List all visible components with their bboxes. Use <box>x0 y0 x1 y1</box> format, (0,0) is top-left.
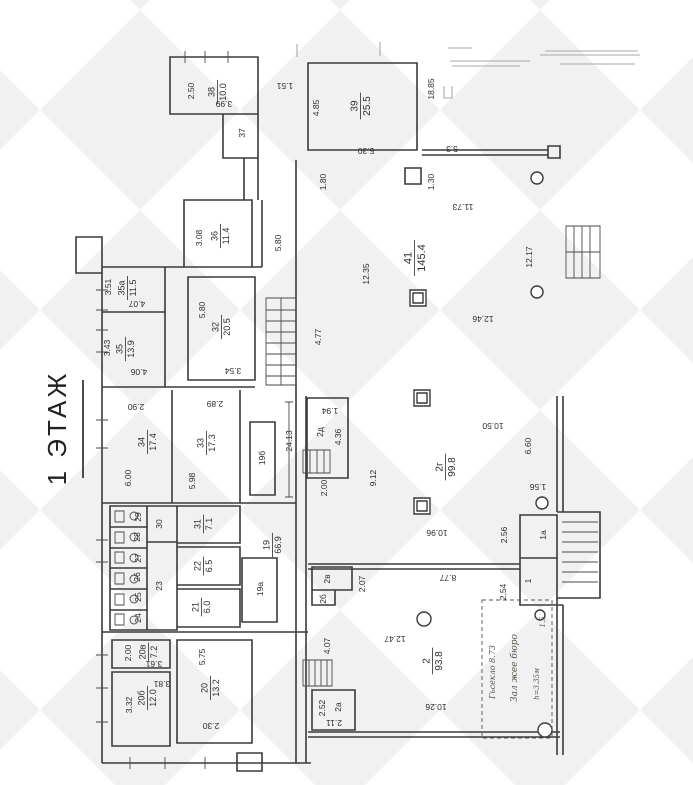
mark-4.07: 4.07 <box>128 299 145 309</box>
mark-4.85: 4.85 <box>311 99 321 116</box>
svg-text:4.85: 4.85 <box>311 99 321 116</box>
mark-1: 1 <box>523 578 533 583</box>
svg-text:5.80: 5.80 <box>273 234 283 251</box>
svg-text:37: 37 <box>237 128 247 138</box>
mark-3.99: 3.99 <box>215 99 232 109</box>
svg-text:20в: 20в <box>138 644 148 659</box>
svg-text:7.2: 7.2 <box>149 646 159 659</box>
svg-text:3.32: 3.32 <box>124 696 134 713</box>
svg-text:66.9: 66.9 <box>273 536 283 554</box>
mark-12.17: 12.17 <box>524 246 534 268</box>
svg-text:12.35: 12.35 <box>361 263 371 285</box>
mark-1а: 1а <box>538 530 548 540</box>
mark-5.98: 5.98 <box>187 472 197 489</box>
mark-12.47: 12.47 <box>384 634 406 644</box>
mark-2.00: 2.00 <box>319 479 329 496</box>
svg-text:19б: 19б <box>257 451 267 465</box>
svg-text:Гьсекло 8.73: Гьсекло 8.73 <box>488 645 497 700</box>
svg-text:27: 27 <box>133 553 143 563</box>
mark-1.94: 1.94 <box>321 406 338 416</box>
svg-text:2д: 2д <box>315 427 325 437</box>
mark-1.56: 1.56 <box>529 482 546 492</box>
svg-text:4.77: 4.77 <box>313 328 323 345</box>
mark-3.08: 3.08 <box>194 229 204 246</box>
svg-text:17.4: 17.4 <box>148 433 158 451</box>
mark-24: 24 <box>133 613 143 623</box>
mark-18.85: 18.85 <box>426 78 436 100</box>
mark-5.30: 5.30 <box>357 146 374 156</box>
mark-2в: 2в <box>322 574 332 584</box>
mark-4.07: 4.07 <box>322 637 332 654</box>
column-square <box>414 390 430 406</box>
svg-text:9.12: 9.12 <box>368 469 378 486</box>
svg-text:7.1: 7.1 <box>204 518 214 531</box>
mark-2.50: 2.50 <box>186 82 196 99</box>
svg-text:3.43: 3.43 <box>102 339 112 356</box>
svg-text:10.0: 10.0 <box>218 83 228 101</box>
svg-text:11.73: 11.73 <box>452 202 473 212</box>
svg-text:21: 21 <box>191 602 201 612</box>
svg-text:h=3.35м: h=3.35м <box>533 668 541 700</box>
mark-1.30: 1.30 <box>426 173 436 190</box>
watermark-layer <box>0 0 693 785</box>
column-square <box>414 498 430 514</box>
svg-text:17.3: 17.3 <box>207 434 217 452</box>
svg-text:28: 28 <box>132 532 142 542</box>
mark-2.00: 2.00 <box>123 644 133 661</box>
svg-text:22: 22 <box>193 561 203 571</box>
mark-5.80: 5.80 <box>273 234 283 251</box>
svg-text:12.46: 12.46 <box>472 314 494 324</box>
svg-text:1.30: 1.30 <box>426 173 436 190</box>
mark-28: 28 <box>132 532 142 542</box>
svg-text:1.5: 1.5 <box>539 616 547 628</box>
handwritten-note-3: h=3.35м <box>533 668 541 700</box>
svg-text:32: 32 <box>211 322 221 332</box>
svg-text:33: 33 <box>196 438 206 448</box>
svg-text:2а: 2а <box>333 702 343 712</box>
svg-text:2г: 2г <box>435 462 446 472</box>
svg-text:36: 36 <box>210 231 220 241</box>
svg-text:93.8: 93.8 <box>434 651 445 671</box>
svg-text:19: 19 <box>262 540 272 550</box>
mark-10.96: 10.96 <box>426 528 448 538</box>
handwritten-note-2: Зал жее бюро <box>509 633 520 701</box>
mark-37: 37 <box>237 128 247 138</box>
mark-2.11: 2.11 <box>326 718 342 728</box>
svg-text:2.54: 2.54 <box>498 583 508 600</box>
svg-text:1а: 1а <box>538 530 548 540</box>
svg-text:6.00: 6.00 <box>123 469 133 486</box>
svg-text:1.80: 1.80 <box>318 173 328 190</box>
mark-1.51: 1.51 <box>276 81 293 91</box>
svg-text:3.61: 3.61 <box>145 659 162 669</box>
svg-text:3.99: 3.99 <box>215 99 232 109</box>
svg-text:20: 20 <box>200 683 210 693</box>
svg-text:4.07: 4.07 <box>322 637 332 654</box>
mark-10.50: 10.50 <box>482 421 504 431</box>
svg-text:10.96: 10.96 <box>426 528 448 538</box>
floor-plan-scan: 1 ЭТАЖ 3810.03925.53611.435а11.53513.932… <box>0 0 693 785</box>
svg-text:4.06: 4.06 <box>130 367 147 377</box>
svg-text:19а: 19а <box>255 582 265 596</box>
svg-text:25: 25 <box>133 592 143 602</box>
mark-5.75: 5.75 <box>197 648 207 665</box>
svg-text:6.60: 6.60 <box>523 437 533 454</box>
mark-12.35: 12.35 <box>361 263 371 285</box>
mark-9.12: 9.12 <box>368 469 378 486</box>
floor-title: 1 ЭТАЖ <box>42 371 72 486</box>
svg-text:3.81: 3.81 <box>153 679 170 689</box>
mark-4.36: 4.36 <box>333 428 343 445</box>
mark-3.43: 3.43 <box>102 339 112 356</box>
svg-text:18.85: 18.85 <box>426 78 436 100</box>
mark-3.81: 3.81 <box>153 679 170 689</box>
svg-text:12.47: 12.47 <box>384 634 406 644</box>
svg-text:1.51: 1.51 <box>276 81 293 91</box>
svg-text:41: 41 <box>403 252 415 264</box>
column-square <box>410 290 426 306</box>
svg-text:35: 35 <box>115 344 125 354</box>
column-round <box>531 286 543 298</box>
svg-text:23: 23 <box>154 581 164 591</box>
handwritten-note-4: 1.5 <box>539 616 547 628</box>
svg-text:25.5: 25.5 <box>362 96 373 116</box>
column-round <box>538 723 552 737</box>
svg-text:2.90: 2.90 <box>127 402 144 412</box>
mark-25: 25 <box>133 592 143 602</box>
svg-text:2.56: 2.56 <box>499 526 509 543</box>
mark-30: 30 <box>154 519 164 529</box>
column-round <box>536 497 548 509</box>
svg-text:2б: 2б <box>318 594 328 604</box>
mark-19б: 19б <box>257 451 267 465</box>
svg-text:11.4: 11.4 <box>221 228 231 245</box>
mark-12.46: 12.46 <box>472 314 494 324</box>
mark-2.89: 2.89 <box>206 399 223 409</box>
svg-text:4.36: 4.36 <box>333 428 343 445</box>
mark-24.13: 24.13 <box>284 430 294 452</box>
svg-text:2.50: 2.50 <box>186 82 196 99</box>
mark-2.54: 2.54 <box>498 583 508 600</box>
mark-3.61: 3.61 <box>145 659 162 669</box>
svg-text:2.52: 2.52 <box>317 699 327 716</box>
svg-text:2.89: 2.89 <box>206 399 223 409</box>
svg-text:31: 31 <box>193 519 203 529</box>
mark-2д: 2д <box>315 427 325 437</box>
mark-11.73: 11.73 <box>452 202 473 212</box>
svg-text:2в: 2в <box>322 574 332 584</box>
svg-text:10.50: 10.50 <box>482 421 504 431</box>
svg-text:10.26: 10.26 <box>425 702 447 712</box>
svg-text:29: 29 <box>133 512 143 522</box>
svg-text:2: 2 <box>422 658 433 664</box>
svg-text:11.5: 11.5 <box>128 280 138 297</box>
svg-text:3.51: 3.51 <box>103 278 113 295</box>
mark-4.06: 4.06 <box>130 367 147 377</box>
svg-text:39: 39 <box>350 100 361 112</box>
mark-3.51: 3.51 <box>103 278 113 295</box>
svg-text:1.56: 1.56 <box>529 482 546 492</box>
svg-text:2.07: 2.07 <box>357 575 367 592</box>
mark-2б: 2б <box>318 594 328 604</box>
svg-text:1: 1 <box>523 578 533 583</box>
mark-19а: 19а <box>255 582 265 596</box>
svg-text:5.98: 5.98 <box>187 472 197 489</box>
mark-2а: 2а <box>333 702 343 712</box>
svg-text:5.75: 5.75 <box>197 648 207 665</box>
mark-2.52: 2.52 <box>317 699 327 716</box>
svg-text:99.8: 99.8 <box>447 457 458 477</box>
mark-29: 29 <box>133 512 143 522</box>
svg-text:Зал жее бюро: Зал жее бюро <box>509 633 520 701</box>
svg-text:145.4: 145.4 <box>416 244 428 272</box>
svg-text:2.00: 2.00 <box>319 479 329 496</box>
mark-2.30: 2.30 <box>202 721 219 731</box>
svg-text:2.30: 2.30 <box>202 721 219 731</box>
svg-text:38: 38 <box>207 87 217 97</box>
svg-text:35а: 35а <box>117 280 127 295</box>
column-round <box>417 612 431 626</box>
svg-text:34: 34 <box>137 437 147 447</box>
mark-6.00: 6.00 <box>123 469 133 486</box>
mark-27: 27 <box>133 553 143 563</box>
mark-3.54: 3.54 <box>224 366 241 376</box>
svg-text:12.17: 12.17 <box>524 246 534 268</box>
svg-text:5.30: 5.30 <box>357 146 374 156</box>
svg-text:26: 26 <box>132 572 142 582</box>
svg-text:4.07: 4.07 <box>128 299 145 309</box>
svg-text:12.0: 12.0 <box>148 689 158 707</box>
svg-text:24: 24 <box>133 613 143 623</box>
svg-text:20б: 20б <box>137 690 147 705</box>
mark-3.32: 3.32 <box>124 696 134 713</box>
svg-text:1.94: 1.94 <box>321 406 338 416</box>
mark-26: 26 <box>132 572 142 582</box>
mark-5.3: 5.3 <box>446 144 458 154</box>
column-round <box>531 172 543 184</box>
svg-text:13.2: 13.2 <box>211 679 221 697</box>
mark-2.07: 2.07 <box>357 575 367 592</box>
mark-5.80: 5.80 <box>197 301 207 318</box>
svg-text:30: 30 <box>154 519 164 529</box>
handwritten-note-1: Гьсекло 8.73 <box>488 645 497 700</box>
svg-text:13.9: 13.9 <box>126 340 136 358</box>
svg-text:5.80: 5.80 <box>197 301 207 318</box>
mark-2.56: 2.56 <box>499 526 509 543</box>
svg-text:24.13: 24.13 <box>284 430 294 452</box>
svg-text:6.5: 6.5 <box>204 560 214 573</box>
svg-text:3.54: 3.54 <box>224 366 241 376</box>
mark-6.60: 6.60 <box>523 437 533 454</box>
svg-text:20.5: 20.5 <box>222 318 232 336</box>
svg-text:3.08: 3.08 <box>194 229 204 246</box>
floor-plan-svg: 1 ЭТАЖ 3810.03925.53611.435а11.53513.932… <box>0 0 693 785</box>
mark-2.90: 2.90 <box>127 402 144 412</box>
svg-text:6.0: 6.0 <box>202 601 212 614</box>
mark-1.80: 1.80 <box>318 173 328 190</box>
mark-4.77: 4.77 <box>313 328 323 345</box>
mark-8.77: 8.77 <box>439 573 456 583</box>
svg-text:2.00: 2.00 <box>123 644 133 661</box>
svg-text:5.3: 5.3 <box>446 144 458 154</box>
mark-10.26: 10.26 <box>425 702 447 712</box>
svg-text:8.77: 8.77 <box>439 573 456 583</box>
mark-23: 23 <box>154 581 164 591</box>
svg-text:2.11: 2.11 <box>326 718 342 728</box>
